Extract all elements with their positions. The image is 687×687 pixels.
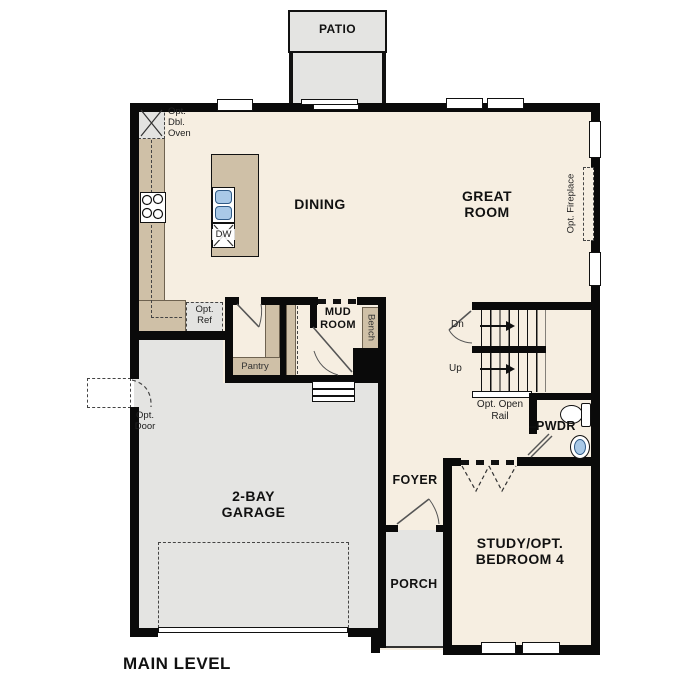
opt-ref-label: Opt. Ref	[186, 304, 223, 326]
wall-foyer-south-a	[386, 525, 398, 532]
window-study-a	[481, 642, 516, 654]
counter-dashed-line-h	[151, 317, 182, 318]
pantry-label: Pantry	[229, 361, 281, 372]
stairs-down-label: Dn	[451, 319, 471, 331]
wall-left-lower	[130, 407, 139, 637]
foyer-label: FOYER	[389, 473, 441, 488]
stairs-down-arrow	[480, 325, 508, 327]
garage-door	[158, 627, 348, 633]
drop-zone-counter	[286, 304, 296, 376]
drop-zone-dashed-line	[297, 306, 298, 374]
dining-label: DINING	[280, 196, 360, 212]
wall-stairs-top	[472, 302, 600, 310]
opt-dbl-oven-label: Opt. Dbl. Oven	[168, 106, 208, 139]
window-greatroom-top-b	[487, 98, 524, 109]
stairs-down-arrowhead	[506, 321, 515, 331]
wall-mudblock-top-a	[225, 297, 239, 305]
window-right-upper	[589, 121, 601, 158]
patio-slider-panel-b	[313, 104, 359, 110]
patio-label: PATIO	[288, 23, 387, 37]
kitchen-counter-bottom	[138, 300, 186, 332]
dishwasher-label: DW	[212, 229, 235, 240]
wall-study-west	[443, 458, 452, 648]
wall-mudblock-bottom	[225, 375, 386, 383]
wall-powder-south	[517, 457, 600, 466]
porch-label: PORCH	[388, 577, 440, 592]
opt-door-label: Opt. Door	[127, 410, 163, 432]
counter-dashed-line-v	[151, 140, 152, 318]
cooktop	[140, 192, 166, 223]
window-study-b	[522, 642, 560, 654]
main-level-title: MAIN LEVEL	[123, 654, 263, 674]
window-greatroom-top-a	[446, 98, 483, 109]
wall-kitchen-garage	[130, 331, 231, 340]
opt-fireplace-box	[583, 167, 594, 241]
opt-door-dashed-stoop	[87, 378, 131, 408]
garage-step-line-1	[313, 388, 354, 390]
stairs-up-arrowhead	[506, 364, 515, 374]
garage-step-line-2	[313, 395, 354, 397]
wall-stairs-landing	[472, 346, 546, 353]
opt-open-rail-label: Opt. Open Rail	[462, 399, 538, 422]
wall-porch-corner	[371, 629, 380, 653]
stairs-up-arrow	[480, 368, 508, 370]
garage-label: 2-BAY GARAGE	[211, 488, 296, 520]
powder-label: PWDR	[536, 419, 582, 434]
opt-double-oven	[138, 108, 165, 139]
window-top-kitchen	[217, 99, 253, 111]
sink-basin-bottom	[215, 206, 232, 220]
powder-sink-basin	[574, 439, 586, 455]
mudroom-wall-mass	[353, 348, 379, 376]
opt-fireplace-label: Opt. Fireplace	[565, 167, 576, 241]
wall-foyer-south-b	[436, 525, 450, 532]
window-right-lower	[589, 252, 601, 286]
mudroom-opening-dashed	[318, 299, 357, 304]
garage-door-dashed-outline	[158, 542, 349, 628]
open-rail	[472, 391, 532, 398]
sink-basin-top	[215, 190, 232, 204]
study-opening-dashed	[461, 460, 517, 465]
floor-plan: PATIO	[0, 0, 687, 687]
wall-powder-north	[529, 393, 600, 400]
toilet-tank	[581, 403, 591, 427]
stairs-up-label: Up	[449, 363, 469, 375]
pantry-shelf-right	[265, 304, 280, 358]
bench-label: Bench	[365, 311, 376, 345]
study-label: STUDY/OPT. BEDROOM 4	[455, 535, 585, 567]
wall-garage-south-a	[130, 628, 158, 637]
great-room-label: GREAT ROOM	[442, 188, 532, 220]
mud-room-label: MUD ROOM	[314, 306, 362, 332]
wall-foyer-west	[378, 304, 386, 648]
garage-steps	[312, 381, 355, 402]
patio-lower-area	[289, 53, 386, 103]
